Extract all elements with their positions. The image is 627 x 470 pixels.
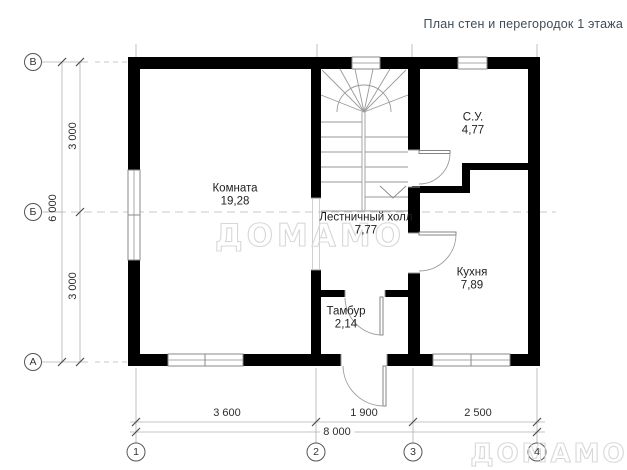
drawing-title: План стен и перегородок 1 этажа (380, 17, 623, 31)
staircase (321, 69, 408, 211)
room-area: 19,28 (212, 195, 257, 208)
window-stair-top (352, 57, 380, 69)
window-room-bottom (168, 354, 243, 366)
dim-bottom-total: 8 000 (320, 426, 354, 438)
room-area: 7,89 (457, 279, 488, 292)
room-area: 7,77 (319, 224, 412, 237)
room-label-bathroom: С.У. 4,77 (462, 112, 484, 137)
axis-grid-lines (45, 62, 556, 362)
room-label-stair-hall: Лестничный холл 7,77 (319, 212, 412, 237)
window-room-left (128, 170, 140, 260)
window-kitchen-bottom (433, 354, 510, 366)
window-bathroom-top (458, 57, 487, 69)
axis-row-v: В (29, 56, 36, 68)
door-kitchen (408, 232, 456, 273)
room-area: 4,77 (462, 124, 484, 137)
dim-left-span-bottom: 3 000 (67, 272, 79, 300)
axis-col-2: 2 (313, 446, 319, 458)
door-bathroom (408, 150, 450, 187)
dim-bottom-span-1: 3 600 (213, 407, 241, 419)
dim-left-total: 6 000 (47, 194, 59, 222)
axis-col-4: 4 (534, 446, 540, 458)
room-label-vestibule: Тамбур 2,14 (326, 306, 365, 331)
axis-col-3: 3 (410, 446, 416, 458)
axis-row-b: Б (30, 206, 37, 218)
dim-bottom-span-3: 2 500 (464, 407, 492, 419)
dim-left-span-top: 3 000 (67, 122, 79, 150)
room-name: Комната (212, 183, 257, 196)
axis-col-1: 1 (133, 446, 139, 458)
room-label-kitchen: Кухня 7,89 (457, 267, 488, 292)
axis-row-a: А (29, 356, 36, 368)
watermark-corner: ДОМАМО (470, 439, 627, 469)
room-name: Лестничный холл (319, 212, 412, 225)
room-label-living: Комната 19,28 (212, 183, 257, 208)
dim-bottom-span-2: 1 900 (350, 407, 378, 419)
room-name: С.У. (462, 112, 484, 125)
room-name: Кухня (457, 267, 488, 280)
floor-plan-canvas: ДОМАМО ДОМАМО План стен и перегородок 1 … (0, 0, 627, 470)
room-area: 2,14 (326, 318, 365, 331)
room-name: Тамбур (326, 306, 365, 319)
door-entrance (341, 354, 387, 406)
